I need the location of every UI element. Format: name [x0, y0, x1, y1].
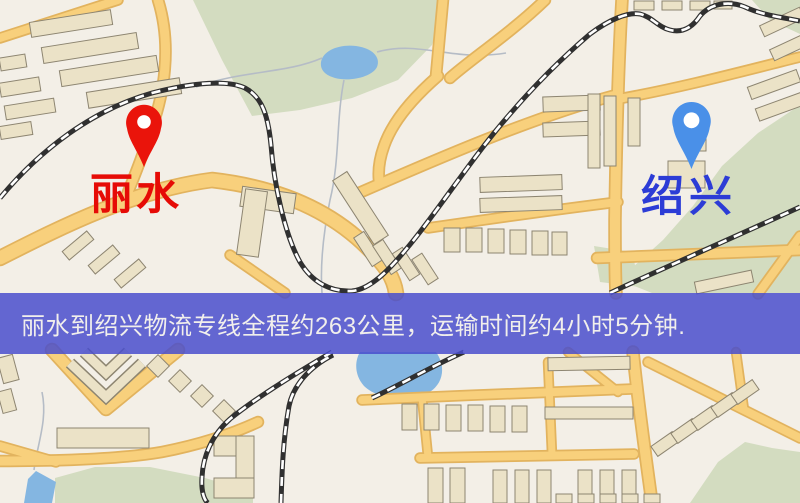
- map-screenshot: 丽水 绍兴 丽水到绍兴物流专线全程约263公里，运输时间约4小时5分钟.: [0, 0, 800, 503]
- marker-label-shaoxing: 绍兴: [641, 176, 737, 219]
- pin-icon-shaoxing: [668, 100, 715, 171]
- marker-label-lishui: 丽水: [90, 174, 182, 217]
- pin-hole: [684, 112, 700, 128]
- route-info-text: 丽水到绍兴物流专线全程约263公里，运输时间约4小时5分钟.: [0, 306, 685, 341]
- pin-hole: [137, 115, 151, 129]
- red-location-pin: [126, 105, 162, 167]
- map-svg: [0, 0, 800, 503]
- route-info-banner: 丽水到绍兴物流专线全程约263公里，运输时间约4小时5分钟.: [0, 293, 800, 354]
- blue-location-pin: [672, 102, 711, 169]
- pin-icon-lishui: [123, 103, 165, 169]
